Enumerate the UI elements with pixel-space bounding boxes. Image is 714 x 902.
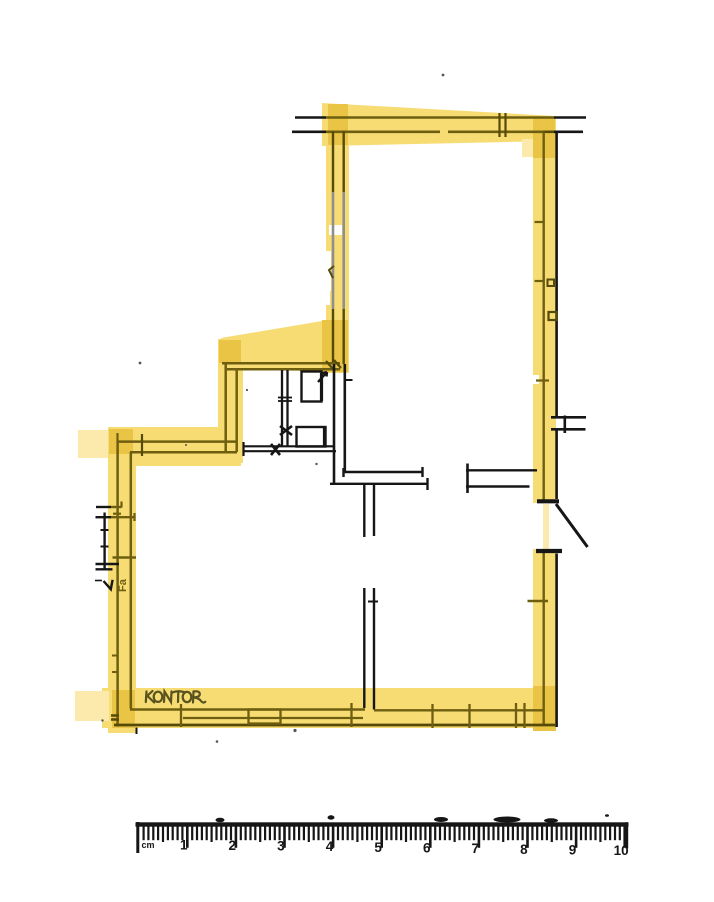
svg-text:7: 7 bbox=[472, 841, 480, 856]
svg-text:1: 1 bbox=[180, 837, 188, 852]
svg-text:8: 8 bbox=[520, 842, 528, 857]
svg-text:Fa: Fa bbox=[117, 578, 129, 592]
svg-text:9: 9 bbox=[569, 843, 577, 858]
svg-text:cm: cm bbox=[142, 840, 155, 850]
svg-text:10: 10 bbox=[614, 843, 629, 858]
svg-text:3: 3 bbox=[277, 839, 285, 854]
svg-text:4: 4 bbox=[326, 839, 334, 854]
svg-text:6: 6 bbox=[423, 841, 431, 856]
svg-text:2: 2 bbox=[229, 838, 237, 853]
svg-text:5: 5 bbox=[374, 840, 382, 855]
